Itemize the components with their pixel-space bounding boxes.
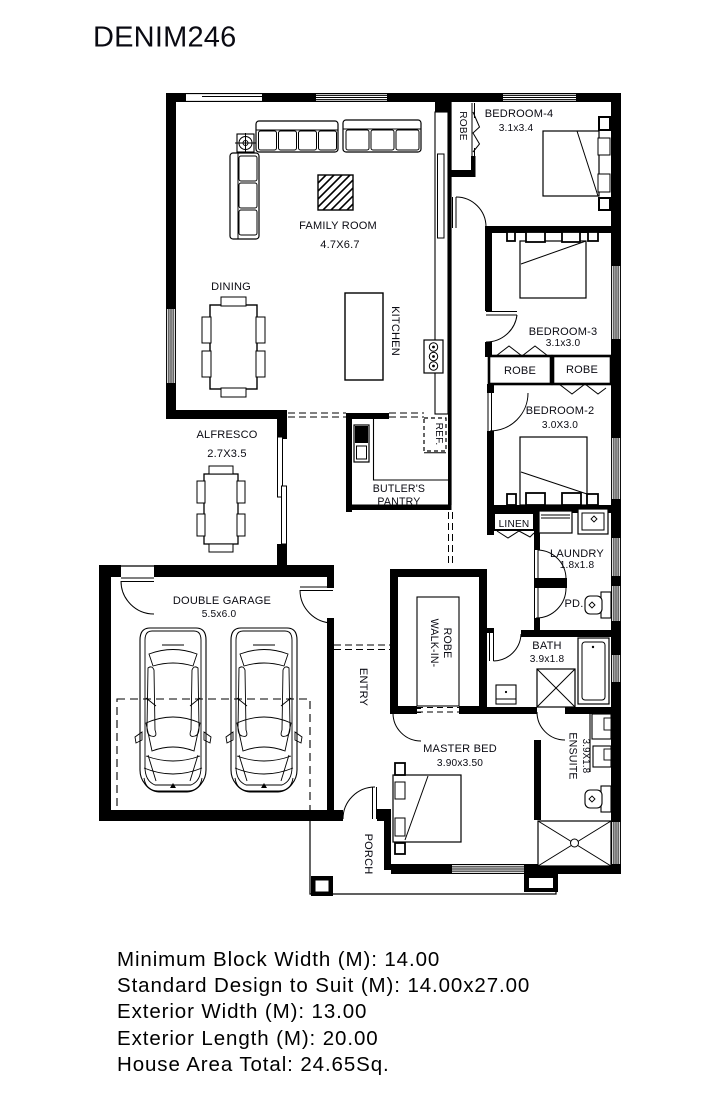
svg-text:ROBE: ROBE — [457, 111, 468, 141]
svg-text:MASTER BED: MASTER BED — [423, 743, 497, 755]
svg-text:3.0X3.0: 3.0X3.0 — [542, 420, 578, 431]
svg-text:ROBE: ROBE — [566, 364, 598, 376]
svg-text:PANTRY: PANTRY — [377, 496, 420, 508]
svg-text:REF.: REF. — [433, 423, 444, 446]
svg-text:DOUBLE GARAGE: DOUBLE GARAGE — [173, 595, 271, 607]
svg-text:LAUNDRY: LAUNDRY — [550, 548, 604, 560]
svg-text:3.1x3.4: 3.1x3.4 — [499, 123, 534, 134]
svg-text:3.9x1.8: 3.9x1.8 — [530, 654, 565, 665]
svg-text:PD.: PD. — [565, 598, 584, 610]
svg-text:KITCHEN: KITCHEN — [389, 306, 401, 356]
svg-text:BEDROOM-4: BEDROOM-4 — [485, 108, 554, 120]
svg-text:ROBE: ROBE — [504, 365, 536, 377]
svg-text:3.90x3.50: 3.90x3.50 — [437, 758, 483, 769]
svg-text:3.9X1.8: 3.9X1.8 — [580, 739, 591, 774]
svg-text:ALFRESCO: ALFRESCO — [196, 429, 257, 441]
svg-text:FAMILY ROOM: FAMILY ROOM — [299, 220, 377, 232]
svg-text:2.7X3.5: 2.7X3.5 — [207, 448, 246, 460]
svg-text:BEDROOM-2: BEDROOM-2 — [526, 405, 595, 417]
svg-text:ENSUITE: ENSUITE — [567, 732, 579, 779]
svg-text:1.8x1.8: 1.8x1.8 — [560, 560, 595, 571]
svg-text:3.1x3.0: 3.1x3.0 — [546, 338, 581, 349]
svg-text:ROBE: ROBE — [441, 628, 453, 659]
svg-text:DINING: DINING — [211, 281, 251, 293]
svg-text:DENIM246: DENIM246 — [93, 22, 236, 54]
svg-text:BEDROOM-3: BEDROOM-3 — [529, 326, 598, 338]
svg-text:5.5x6.0: 5.5x6.0 — [202, 609, 237, 620]
svg-text:BATH: BATH — [532, 640, 561, 652]
svg-text:4.7X6.7: 4.7X6.7 — [320, 239, 359, 251]
svg-text:ENTRY: ENTRY — [357, 668, 369, 707]
svg-text:BUTLER'S: BUTLER'S — [373, 483, 425, 495]
svg-text:WALK-IN-: WALK-IN- — [428, 619, 440, 668]
svg-text:PORCH: PORCH — [362, 834, 374, 875]
svg-text:LINEN: LINEN — [499, 519, 530, 530]
